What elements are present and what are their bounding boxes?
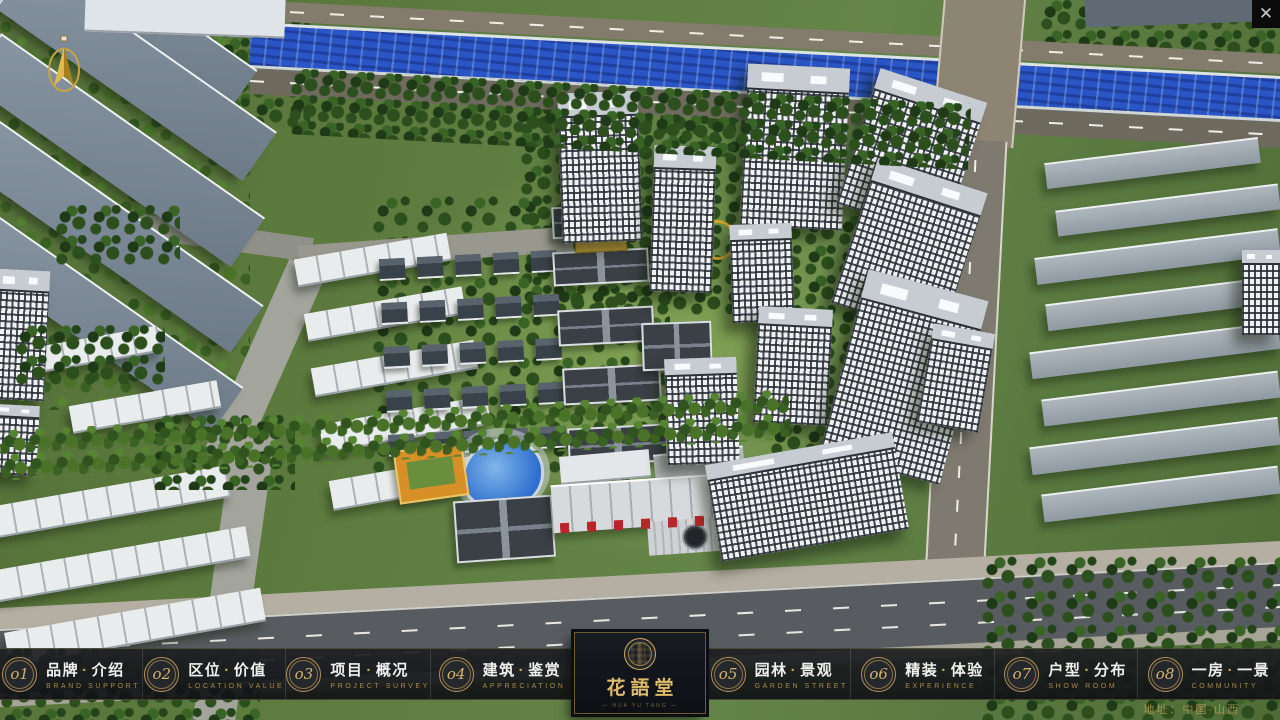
nav-number-badge: o5 <box>711 657 746 692</box>
house <box>381 302 408 325</box>
nav-item-brand[interactable]: o1 品牌·介绍 BRAND SUPPORT <box>0 649 142 699</box>
masterplan-render <box>0 0 1280 720</box>
nav-number-badge: o6 <box>861 657 896 692</box>
separator-dot: · <box>788 662 801 679</box>
nav-item-project[interactable]: o3 项目·概况 PROJECT SURVEY <box>285 649 430 699</box>
nav-item-floorplan[interactable]: o7 户型·分布 SHOW ROOM <box>994 649 1137 699</box>
separator-dot: · <box>79 662 92 679</box>
nav-number-badge: o7 <box>1004 657 1039 692</box>
house <box>379 258 406 281</box>
nav-item-landscape[interactable]: o5 园林·景观 GARDEN STREET <box>707 649 850 699</box>
house <box>459 342 486 365</box>
midrise-building <box>557 306 655 347</box>
chinese-gate-court <box>453 495 556 564</box>
separator-dot: · <box>1081 662 1094 679</box>
nav-item-subtitle: APPRECIATION <box>483 683 566 690</box>
nav-item-subtitle: LOCATION VALUE <box>188 683 284 690</box>
house <box>419 300 446 323</box>
entry-emblem <box>682 524 708 550</box>
house <box>493 252 520 275</box>
building-row <box>1041 371 1280 427</box>
separator-dot: · <box>363 662 376 679</box>
nav-number-badge: o1 <box>2 657 37 692</box>
compass-north-icon <box>44 34 84 98</box>
nav-number-badge: o3 <box>286 657 321 692</box>
building-row <box>1055 183 1280 236</box>
house <box>455 254 482 277</box>
building-row <box>1041 466 1280 523</box>
nav-number-badge: o8 <box>1148 657 1183 692</box>
separator-dot: · <box>938 662 951 679</box>
midrise-building <box>552 248 650 287</box>
nav-item-architecture[interactable]: o4 建筑·鉴赏 APPRECIATION <box>430 649 573 699</box>
nav-item-subtitle: BRAND SUPPORT <box>46 683 140 690</box>
close-button[interactable]: ✕ <box>1252 0 1280 28</box>
nav-item-subtitle: SHOW ROOM <box>1048 683 1117 690</box>
grove <box>55 205 180 265</box>
separator-dot: · <box>516 662 529 679</box>
nav-item-subtitle: PROJECT SURVEY <box>330 683 430 690</box>
house <box>383 346 410 369</box>
nav-number-badge: o4 <box>439 657 474 692</box>
separator-dot: · <box>221 662 234 679</box>
nav-item-subtitle: GARDEN STREET <box>755 683 848 690</box>
building-row <box>1029 417 1280 475</box>
nav-item-views[interactable]: o8 一房·一景 COMMUNITY <box>1137 649 1280 699</box>
house <box>497 340 524 363</box>
nav-item-subtitle: EXPERIENCE <box>905 683 976 690</box>
nav-item-interior[interactable]: o6 精装·体验 EXPERIENCE <box>850 649 993 699</box>
house <box>421 344 448 367</box>
address-label: 地址：中国·山西 <box>1143 701 1240 717</box>
house <box>417 256 444 279</box>
brand-subtitle: — HUA YU TANG — <box>602 703 678 709</box>
nav-item-subtitle: COMMUNITY <box>1192 683 1259 690</box>
house <box>495 296 522 319</box>
presentation-stage: ✕ o1 品牌·介绍 BRAND SUPPORT o2 区位·价值 LOCATI… <box>0 0 1280 720</box>
brand-seal-icon <box>624 638 656 670</box>
brand-title: 花語堂 <box>601 673 678 700</box>
building-row <box>1044 137 1261 189</box>
grove <box>15 325 165 385</box>
house <box>533 294 560 317</box>
house <box>457 298 484 321</box>
logo-panel[interactable]: 花語堂 — HUA YU TANG — <box>574 632 706 714</box>
tower <box>649 145 716 293</box>
tower <box>1242 250 1280 335</box>
nav-number-badge: o2 <box>144 657 179 692</box>
nav-item-location[interactable]: o2 区位·价值 LOCATION VALUE <box>142 649 285 699</box>
separator-dot: · <box>1225 662 1238 679</box>
